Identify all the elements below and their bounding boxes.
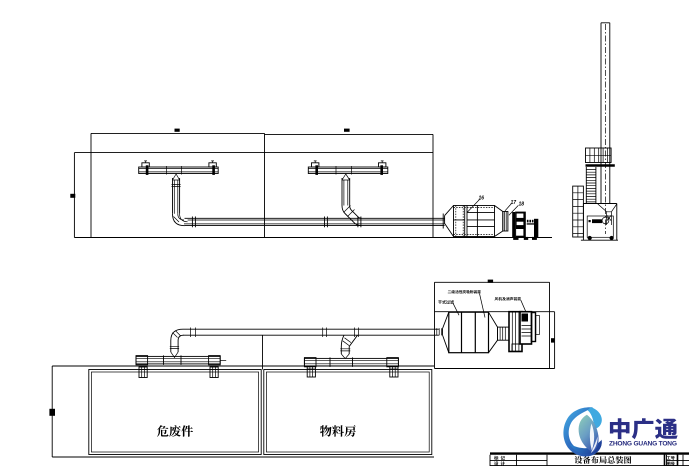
svg-text:16: 16	[479, 196, 485, 202]
svg-text:ZHONG GUANG TONG: ZHONG GUANG TONG	[609, 441, 677, 448]
svg-text:18: 18	[519, 202, 525, 208]
svg-text:17: 17	[511, 200, 517, 206]
